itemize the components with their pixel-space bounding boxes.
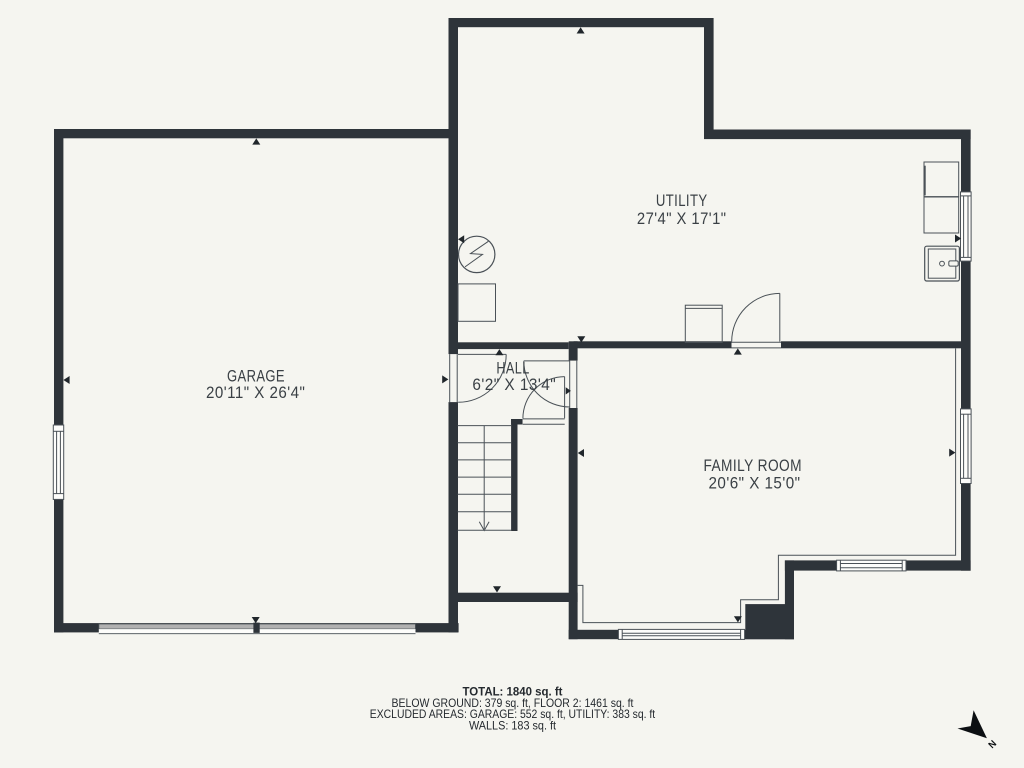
svg-text:20'11" X 26'4": 20'11" X 26'4"	[206, 384, 305, 402]
svg-text:HALL: HALL	[496, 360, 529, 378]
svg-text:GARAGE: GARAGE	[227, 367, 285, 385]
svg-text:UTILITY: UTILITY	[656, 192, 708, 210]
svg-text:WALLS: 183 sq. ft: WALLS: 183 sq. ft	[469, 720, 557, 733]
svg-text:6'2" X 13'4": 6'2" X 13'4"	[472, 376, 556, 394]
svg-text:27'4" X 17'1": 27'4" X 17'1"	[637, 210, 727, 228]
svg-text:20'6" X 15'0": 20'6" X 15'0"	[709, 475, 801, 493]
svg-text:FAMILY ROOM: FAMILY ROOM	[703, 457, 802, 475]
